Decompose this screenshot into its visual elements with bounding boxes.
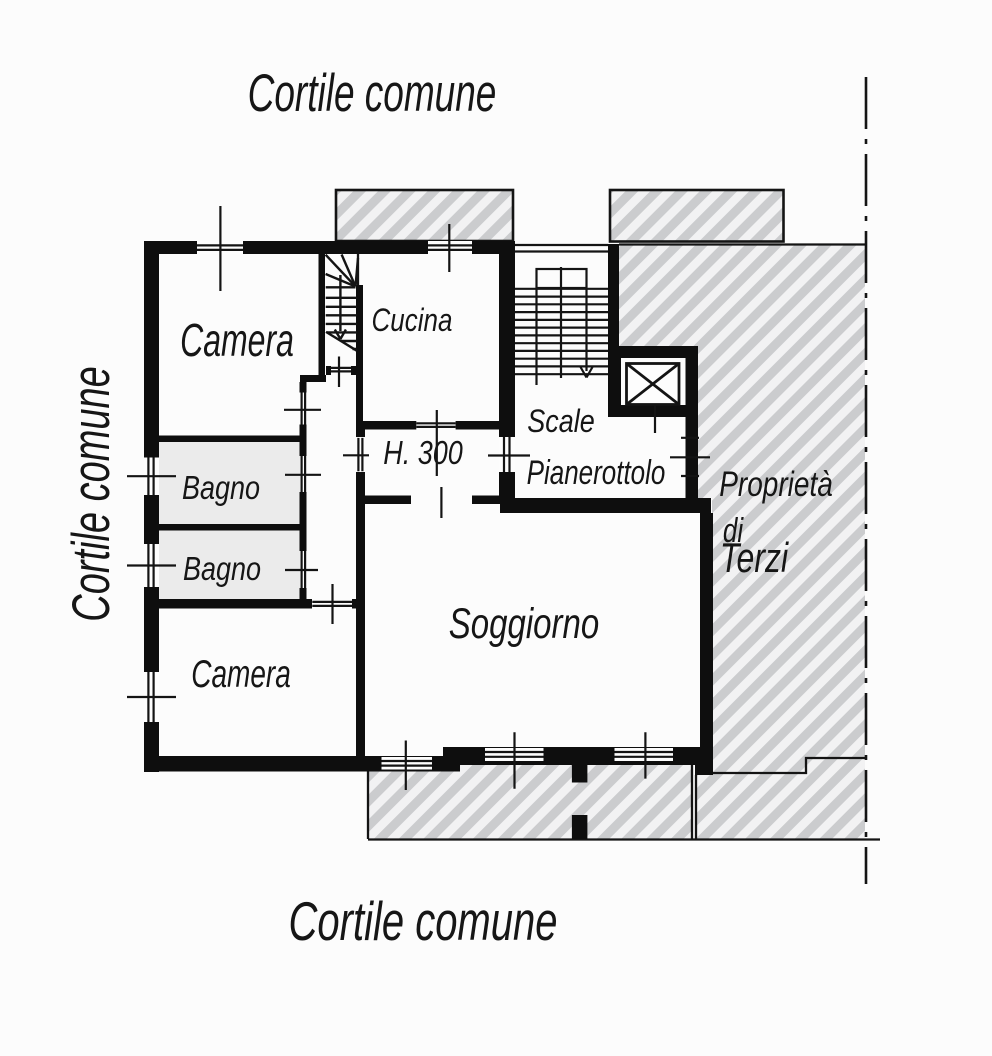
svg-text:Cucina: Cucina — [372, 302, 453, 338]
svg-text:Cortile comune: Cortile comune — [248, 64, 497, 123]
svg-text:H. 300: H. 300 — [383, 434, 463, 472]
svg-text:Camera: Camera — [180, 315, 294, 366]
svg-text:Bagno: Bagno — [183, 550, 261, 588]
svg-text:Pianerottolo: Pianerottolo — [527, 455, 666, 492]
svg-text:Proprietà: Proprietà — [719, 464, 833, 504]
svg-text:Camera: Camera — [191, 653, 291, 697]
svg-text:Terzi: Terzi — [720, 534, 790, 581]
svg-text:Cortile comune: Cortile comune — [62, 366, 120, 621]
svg-text:Scale: Scale — [527, 404, 595, 440]
svg-text:Bagno: Bagno — [182, 469, 260, 507]
svg-text:Soggiorno: Soggiorno — [449, 601, 599, 648]
svg-text:Cortile comune: Cortile comune — [289, 892, 558, 952]
